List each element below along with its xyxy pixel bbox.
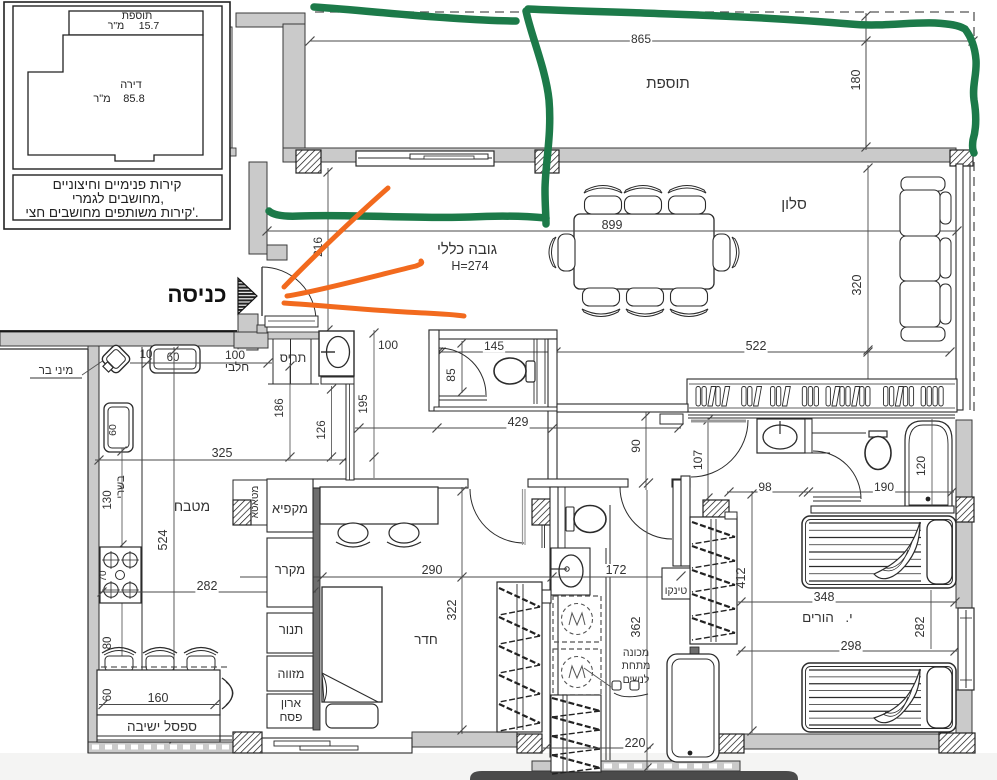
svg-text:תוספת: תוספת [646,75,689,92]
svg-text:98: 98 [758,480,772,494]
svg-text:85.8: 85.8 [123,93,144,105]
svg-text:412: 412 [734,568,748,589]
svg-text:172: 172 [606,563,627,577]
svg-text:70: 70 [98,570,109,582]
svg-text:282: 282 [913,617,927,638]
svg-text:60: 60 [167,352,180,364]
svg-text:קירות משותפים מחושבים חצי'.: קירות משותפים מחושבים חצי'. [25,205,198,220]
svg-text:כניסה: כניסה [167,282,226,307]
svg-text:מקפיא: מקפיא [272,501,308,516]
svg-text:מיני בר: מיני בר [39,365,74,377]
svg-text:190: 190 [874,480,894,494]
svg-text:290: 290 [422,563,443,577]
svg-text:145: 145 [484,339,504,353]
svg-text:H=274: H=274 [451,259,488,273]
svg-text:60: 60 [102,689,114,702]
svg-text:מטבח: מטבח [174,498,210,514]
svg-text:מכונה: מכונה [623,647,649,659]
svg-text:מטאטא: מטאטא [250,486,261,519]
svg-text:429: 429 [508,415,529,429]
svg-text:מ"ר: מ"ר [93,93,110,105]
svg-text:130: 130 [102,490,114,509]
svg-text:ארון: ארון [281,696,302,710]
svg-text:320: 320 [850,275,864,296]
svg-text:טינקו: טינקו [665,585,688,597]
svg-text:מקרר: מקרר [275,562,305,577]
svg-text:מתחת: מתחת [622,660,651,672]
svg-text:322: 322 [445,600,459,621]
svg-text:107: 107 [691,450,705,470]
svg-text:60: 60 [107,424,119,436]
svg-text:סלון: סלון [781,196,807,213]
svg-text:195: 195 [358,394,370,413]
svg-text:מ"ר: מ"ר [108,20,125,32]
svg-text:120: 120 [914,456,928,476]
svg-text:הורים: הורים [802,610,834,625]
svg-text:186: 186 [274,398,286,417]
svg-text:126: 126 [316,420,328,439]
svg-text:100: 100 [378,338,398,352]
svg-text:522: 522 [746,339,767,353]
svg-text:מחושבים לגמרי,: מחושבים לגמרי, [72,191,164,206]
svg-text:בשרי: בשרי [115,475,127,499]
svg-text:220: 220 [625,736,646,750]
svg-text:גובה כללי: גובה כללי [437,241,497,258]
svg-text:90: 90 [629,439,643,453]
svg-text:תנור: תנור [279,622,303,637]
svg-text:ספסל ישיבה: ספסל ישיבה [127,719,197,734]
svg-text:348: 348 [814,590,835,604]
svg-text:524: 524 [156,530,170,551]
svg-text:.י: .י [845,610,852,625]
svg-text:865: 865 [631,32,651,46]
svg-text:282: 282 [197,579,218,593]
svg-text:298: 298 [841,639,862,653]
svg-text:חדר: חדר [414,632,438,647]
svg-text:362: 362 [629,617,643,638]
svg-text:80: 80 [102,637,114,650]
svg-text:פסח: פסח [280,710,303,724]
svg-text:180: 180 [849,70,863,91]
svg-text:15.7: 15.7 [139,20,160,32]
svg-text:899: 899 [602,218,623,232]
svg-text:מזווה: מזווה [277,667,304,681]
svg-text:דירה: דירה [120,79,141,91]
svg-text:325: 325 [212,446,233,460]
svg-text:85: 85 [444,368,458,382]
svg-text:חלבי: חלבי [225,360,249,374]
svg-text:160: 160 [148,691,169,705]
svg-text:קירות פנימיים וחיצוניים: קירות פנימיים וחיצוניים [53,177,182,192]
